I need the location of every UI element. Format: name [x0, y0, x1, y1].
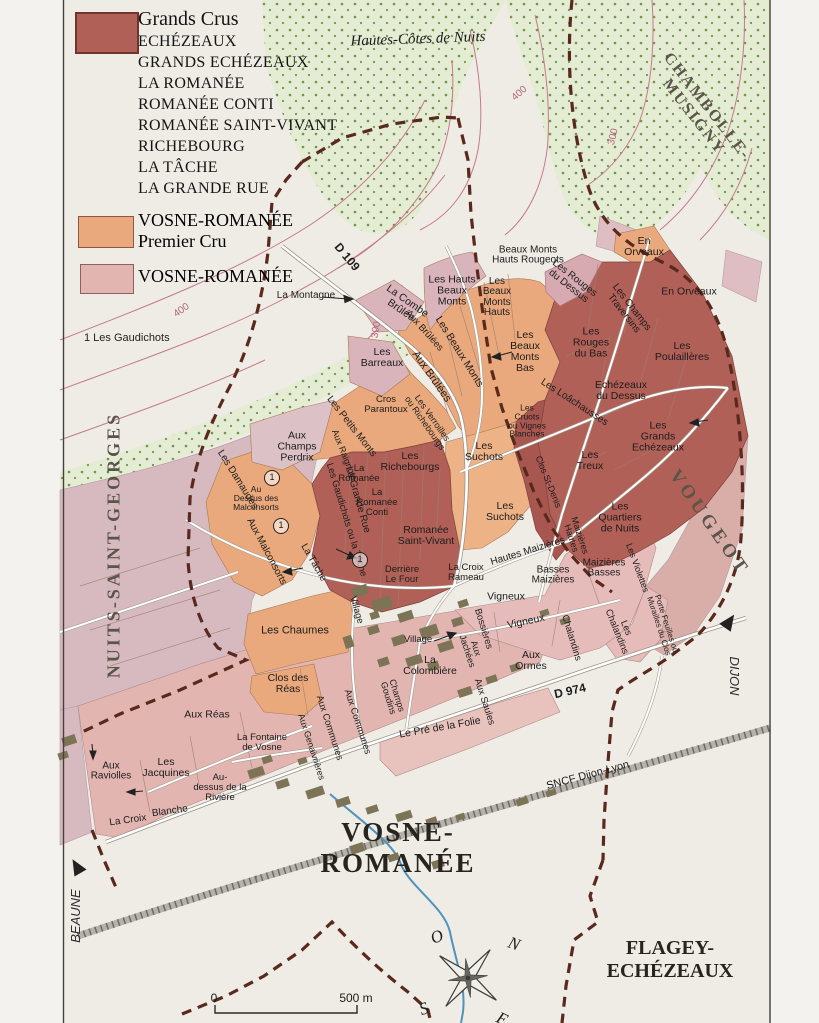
- map-canvas: [0, 0, 819, 1023]
- legend-grand-cru-name: ROMANÉE CONTI: [138, 96, 274, 114]
- legend-grand-cru-name: LA GRANDE RUE: [138, 180, 269, 198]
- legend-grand-cru-name: ECHÉZEAUX: [138, 33, 237, 51]
- legend-grand-cru-name: GRANDS ECHÉZEAUX: [138, 54, 309, 72]
- legend-village-label: VOSNE-ROMANÉE: [138, 266, 293, 287]
- legend-premier-cru-label: VOSNE-ROMANÉE: [138, 210, 293, 231]
- legend-grand-cru-name: LA TÂCHE: [138, 159, 218, 177]
- legend-title-grands-crus: Grands Crus: [138, 8, 239, 31]
- legend-grand-cru-name: ROMANÉE SAINT-VIVANT: [138, 117, 337, 135]
- legend-swatch-premier-cru: [78, 216, 134, 248]
- legend-swatch-grand-cru: [75, 12, 139, 54]
- legend-premier-cru-sublabel: Premier Cru: [138, 231, 226, 252]
- legend-swatch-village: [80, 264, 134, 294]
- legend-grand-cru-name: RICHEBOURG: [138, 138, 245, 156]
- vosne-romanee-vineyard-map: Hautes-Côtes de NuitsCHAMBOLLE- MUSIGNYN…: [0, 0, 819, 1023]
- legend-grand-cru-name: LA ROMANÉE: [138, 75, 245, 93]
- legend-footnote: 1 Les Gaudichots: [84, 332, 170, 344]
